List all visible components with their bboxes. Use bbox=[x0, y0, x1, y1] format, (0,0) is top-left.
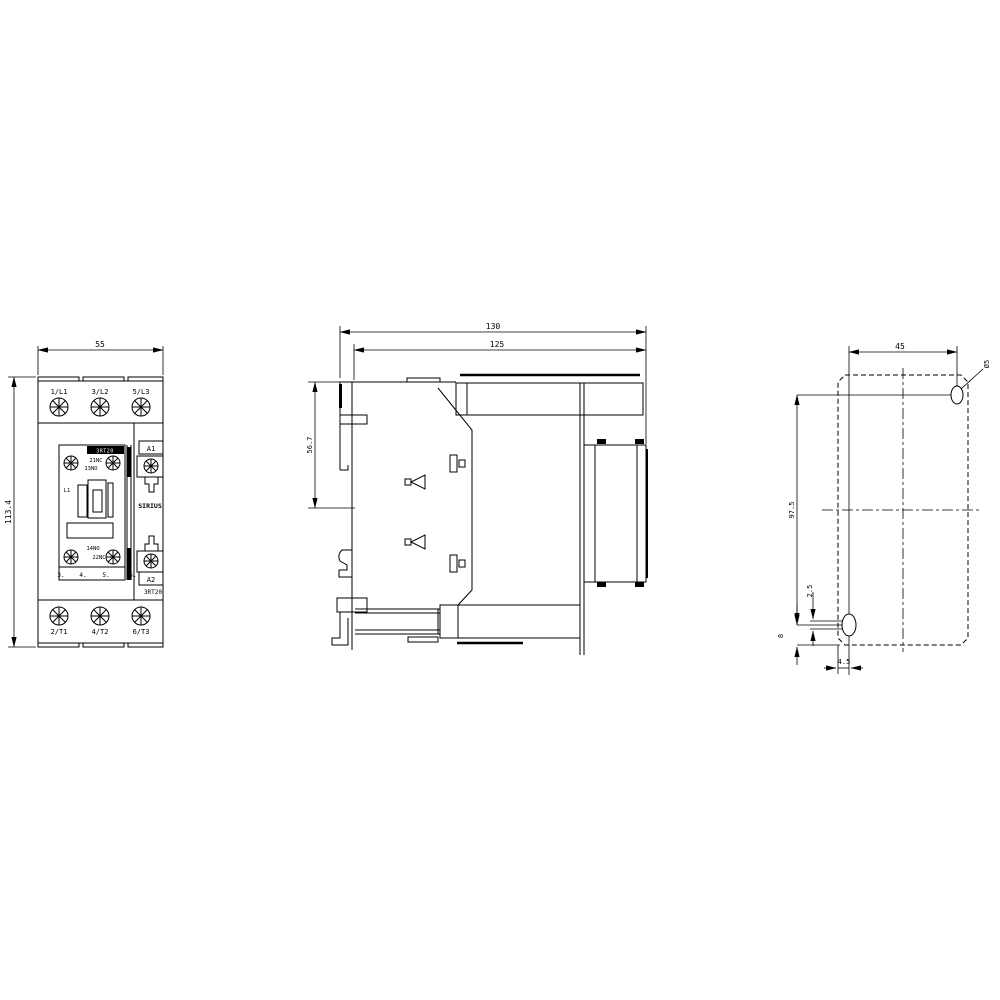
position-number: 5. bbox=[102, 572, 109, 579]
side-depth-body-value: 125 bbox=[490, 340, 505, 349]
aux-label-22nc: 22NC bbox=[92, 555, 105, 561]
front-height-dimension: 113.4 bbox=[4, 377, 36, 647]
side-view: 130 125 56.7 bbox=[300, 318, 670, 670]
bottom-offset-value: 8 bbox=[777, 634, 785, 638]
coil-terminal-a2: A2 bbox=[147, 576, 155, 584]
front-bottom-terminals: 2/T1 4/T2 6/T3 bbox=[50, 607, 150, 636]
position-number: 4. bbox=[79, 572, 86, 579]
side-rail-offset-value: 56.7 bbox=[306, 437, 314, 454]
position-number: 3. bbox=[57, 572, 64, 579]
side-depth-total-value: 130 bbox=[486, 322, 501, 331]
front-width-dimension: 55 bbox=[38, 340, 163, 375]
hole-diameter-value: Ø5 bbox=[983, 360, 991, 368]
terminal-label: 2/T1 bbox=[51, 628, 68, 636]
front-view: 55 113.4 1/L1 3/L2 5/L3 2/T1 4/T bbox=[0, 330, 180, 670]
side-interior-details bbox=[405, 455, 465, 572]
coil-voltage-marker: L1 bbox=[64, 488, 71, 494]
terminal-label: 6/T3 bbox=[133, 628, 150, 636]
front-width-value: 55 bbox=[95, 340, 105, 349]
front-divider-strip: 5. bbox=[127, 445, 137, 580]
front-coil-column: A1 SIRIUS A2 3RT20 bbox=[134, 423, 163, 600]
terminal-label: 5/L3 bbox=[133, 388, 150, 396]
slot-play-dimension: 2.5 bbox=[806, 585, 814, 646]
nameplate-band-text: 3RT20 bbox=[96, 449, 114, 455]
hole-pitch-y-value: 97.5 bbox=[788, 502, 796, 519]
aux-label-14no: 14NO bbox=[86, 546, 99, 552]
position-number: 5. bbox=[129, 572, 136, 579]
side-coil-block bbox=[584, 439, 647, 587]
side-body-profile bbox=[352, 375, 643, 655]
drill-plan-view: 45 97.5 Ø5 2.5 bbox=[770, 330, 1000, 680]
edge-offset-value: 4.5 bbox=[838, 658, 851, 666]
terminal-label: 3/L2 bbox=[92, 388, 109, 396]
terminal-label: 1/L1 bbox=[51, 388, 68, 396]
footprint-outline bbox=[822, 368, 980, 652]
slot-play-value: 2.5 bbox=[806, 585, 814, 598]
technical-drawing-sheet: 55 113.4 1/L1 3/L2 5/L3 2/T1 4/T bbox=[0, 0, 1000, 1000]
hole-pitch-x-value: 45 bbox=[895, 342, 905, 351]
front-height-value: 113.4 bbox=[4, 500, 13, 524]
side-rail-offset-dimension: 56.7 bbox=[306, 382, 355, 508]
aux-label-13no: 13NO bbox=[84, 466, 97, 472]
model-text: 3RT20 bbox=[144, 589, 162, 596]
coil-terminal-a1: A1 bbox=[147, 445, 155, 453]
brand-logo-text: SIRIUS bbox=[138, 502, 162, 510]
front-top-terminals: 1/L1 3/L2 5/L3 bbox=[50, 388, 150, 416]
din-rail-clip bbox=[332, 382, 367, 645]
bottom-mounting-slot bbox=[797, 614, 856, 636]
bottom-offset-dimension: 8 bbox=[777, 605, 840, 665]
edge-offset-dimension: 4.5 bbox=[824, 645, 863, 674]
front-aux-module: 3RT20 21NC 13NO L1 14NO 22NC 3. 4. 5. bbox=[57, 445, 125, 580]
aux-label-21nc: 21NC bbox=[89, 458, 102, 464]
terminal-label: 4/T2 bbox=[92, 628, 109, 636]
